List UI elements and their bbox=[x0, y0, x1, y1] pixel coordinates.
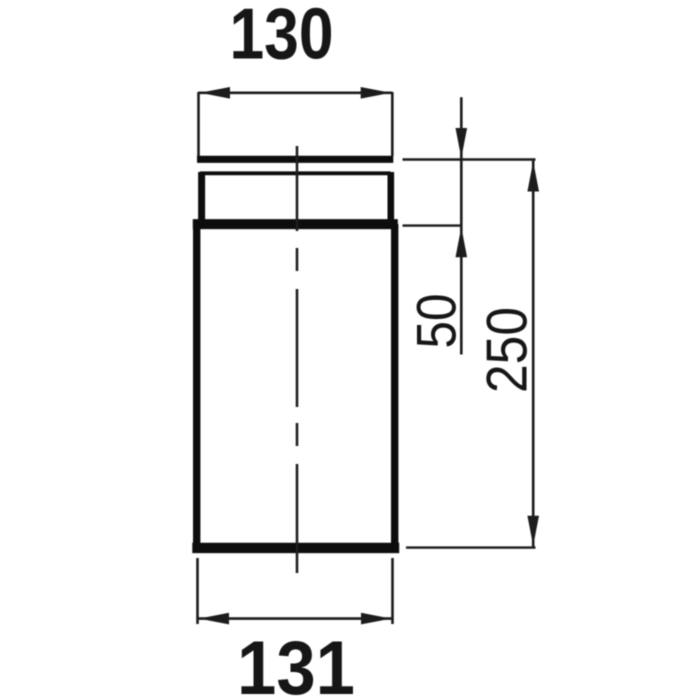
svg-text:131: 131 bbox=[237, 626, 355, 700]
svg-text:130: 130 bbox=[230, 0, 334, 75]
svg-text:250: 250 bbox=[476, 307, 540, 393]
svg-text:50: 50 bbox=[405, 294, 468, 349]
